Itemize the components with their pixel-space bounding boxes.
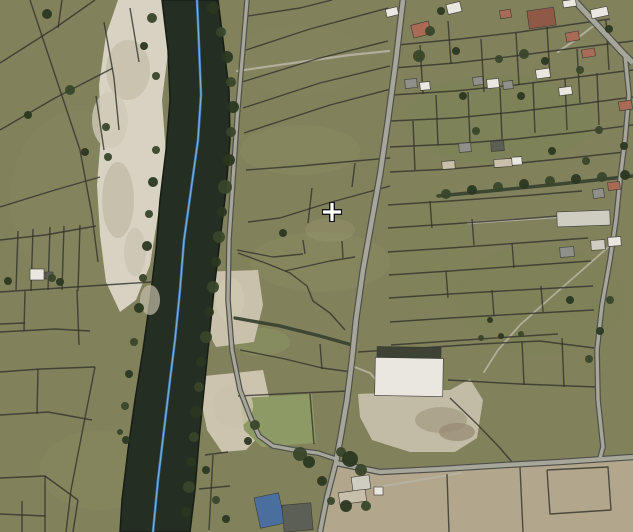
tree [226, 127, 236, 137]
building [405, 78, 418, 88]
tree [596, 327, 604, 335]
tree [303, 456, 315, 468]
tree [576, 66, 584, 74]
tree [498, 333, 504, 339]
tree [134, 303, 144, 313]
tree [472, 127, 480, 135]
building [503, 80, 514, 89]
tree [620, 170, 630, 180]
building [442, 161, 456, 170]
tree [121, 402, 129, 410]
tree [437, 7, 445, 15]
tree [493, 182, 503, 192]
building [593, 188, 605, 198]
tree [340, 500, 352, 512]
tree [517, 92, 525, 100]
tree [545, 176, 555, 186]
tree [122, 436, 130, 444]
tree [213, 231, 225, 243]
tree [548, 147, 556, 155]
tree [518, 331, 524, 337]
tree [202, 466, 210, 474]
parcel-boundary [342, 241, 343, 258]
gravel-mottle [102, 162, 134, 238]
gravel-mottle [92, 92, 128, 148]
tree [226, 77, 236, 87]
tree [181, 507, 191, 517]
tree [24, 111, 32, 119]
tree [125, 370, 133, 378]
tree [217, 207, 227, 217]
tree [478, 335, 484, 341]
tree [139, 274, 147, 282]
tree [190, 406, 202, 418]
tree [606, 296, 614, 304]
building [499, 9, 511, 18]
tree [183, 481, 195, 493]
building [459, 143, 472, 153]
tree [218, 180, 232, 194]
tree [519, 49, 529, 59]
tree [194, 382, 204, 392]
tree [227, 101, 239, 113]
building [618, 100, 632, 111]
parcel-boundary [24, 291, 25, 331]
tree [42, 9, 52, 19]
tree [452, 47, 460, 55]
tree [413, 50, 425, 62]
tree [327, 497, 335, 505]
tree [212, 496, 220, 504]
building [559, 86, 573, 96]
building [527, 7, 556, 29]
tree [207, 2, 219, 14]
tree [204, 307, 214, 317]
gravel-mottle [124, 228, 146, 276]
building [351, 475, 371, 491]
building [494, 158, 513, 167]
building [608, 181, 621, 190]
tree [207, 281, 219, 293]
tree [216, 27, 226, 37]
building [374, 487, 383, 495]
tree [487, 317, 493, 323]
tree [279, 229, 287, 237]
tree [196, 357, 206, 367]
tree [221, 51, 233, 63]
parcel-boundary [37, 369, 38, 414]
field-tone-patch [230, 25, 370, 95]
tree [595, 126, 603, 134]
tree [467, 185, 477, 195]
tree [65, 85, 75, 95]
tree [566, 296, 574, 304]
tree [250, 420, 260, 430]
tree [244, 437, 252, 445]
building [560, 247, 575, 258]
tree [186, 457, 196, 467]
building [282, 503, 313, 532]
gravel-mottle [439, 423, 475, 441]
parcel-boundary [0, 323, 25, 324]
map-viewport[interactable] [0, 0, 633, 532]
tree [222, 515, 230, 523]
tree [571, 174, 581, 184]
building [535, 68, 550, 79]
building [511, 157, 523, 166]
tree [200, 331, 212, 343]
tree [495, 55, 503, 63]
building [420, 81, 431, 90]
tree [585, 355, 593, 363]
tree [48, 274, 56, 282]
tree [541, 57, 549, 65]
tree [104, 153, 112, 161]
building [491, 141, 505, 152]
tree [145, 210, 153, 218]
tree [4, 277, 12, 285]
tree [81, 148, 89, 156]
tree [148, 177, 158, 187]
tree [605, 25, 613, 33]
tree [317, 476, 327, 486]
field-tone-patch [240, 125, 360, 175]
tree [441, 189, 451, 199]
building [473, 76, 484, 85]
tree [223, 154, 235, 166]
tree [152, 146, 160, 154]
building [487, 78, 500, 88]
tree [102, 123, 110, 131]
tree [142, 241, 152, 251]
tree [56, 278, 64, 286]
building [608, 237, 622, 247]
tree [425, 26, 435, 36]
tree [117, 429, 123, 435]
tree [620, 142, 628, 150]
tree [130, 338, 138, 346]
building [565, 31, 579, 42]
tree [211, 257, 221, 267]
tree [355, 464, 367, 476]
building [557, 210, 610, 227]
building [591, 240, 606, 251]
tree [152, 72, 160, 80]
tree [459, 92, 467, 100]
map-canvas [0, 0, 633, 532]
tree [597, 172, 607, 182]
building [30, 269, 44, 280]
tree [140, 42, 148, 50]
tree [519, 179, 529, 189]
tree [342, 451, 358, 467]
tree [147, 13, 157, 23]
tree [189, 432, 199, 442]
tree [361, 501, 371, 511]
building [375, 357, 444, 396]
tree [582, 157, 590, 165]
